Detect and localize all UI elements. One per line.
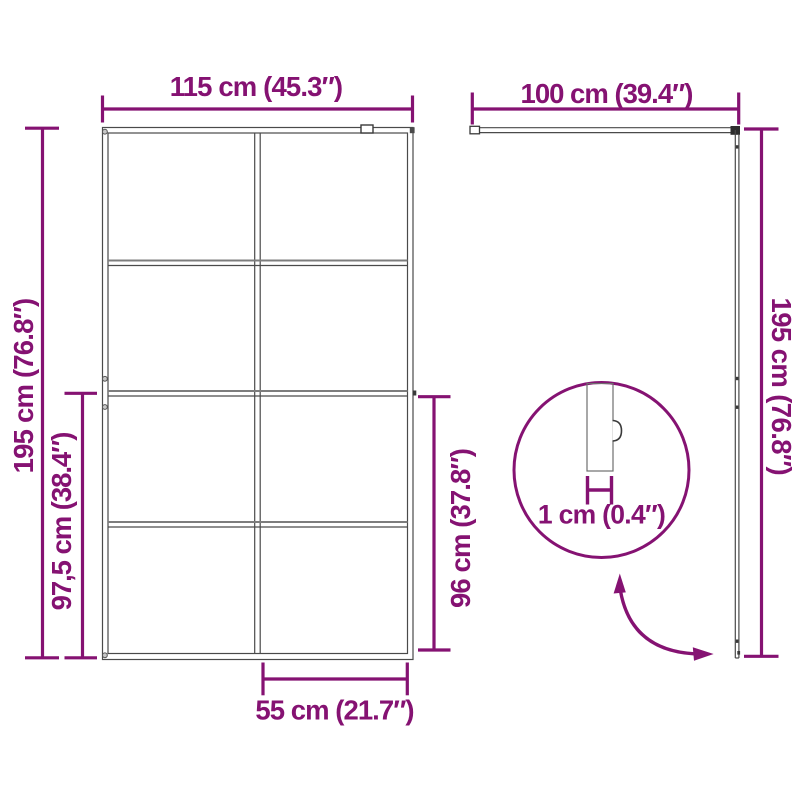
svg-text:195 cm (76.8″): 195 cm (76.8″) bbox=[8, 299, 39, 474]
svg-text:115 cm (45.3″): 115 cm (45.3″) bbox=[170, 71, 343, 102]
svg-text:195 cm (76.8″): 195 cm (76.8″) bbox=[766, 298, 797, 476]
svg-text:1 cm (0.4″): 1 cm (0.4″) bbox=[538, 500, 665, 530]
svg-text:97,5 cm (38.4″): 97,5 cm (38.4″) bbox=[46, 433, 77, 611]
svg-text:100 cm (39.4″): 100 cm (39.4″) bbox=[521, 78, 693, 109]
svg-text:96 cm (37.8″): 96 cm (37.8″) bbox=[445, 449, 476, 608]
svg-text:55 cm (21.7″): 55 cm (21.7″) bbox=[255, 695, 413, 726]
